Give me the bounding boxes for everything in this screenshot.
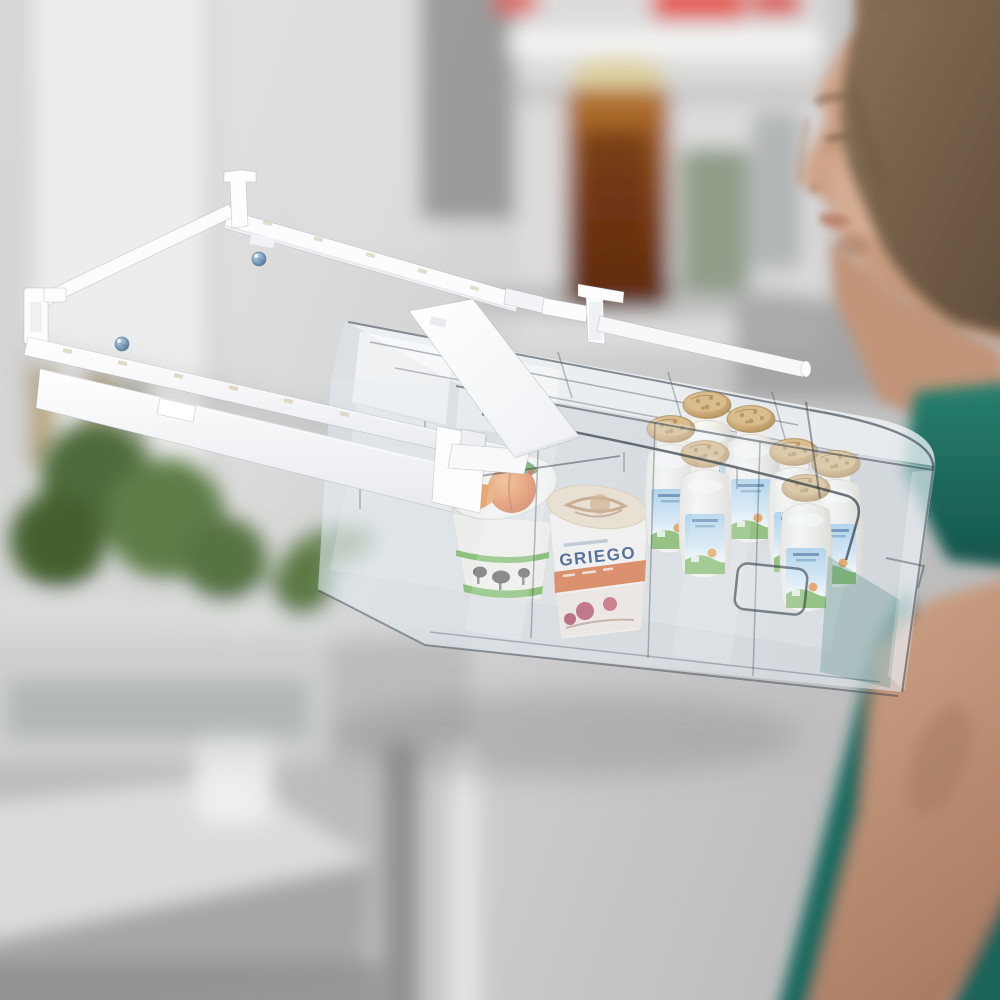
shelf-under — [0, 962, 380, 1000]
bowl-shadow — [8, 680, 308, 738]
chin-shadow — [836, 236, 868, 256]
nostril — [809, 185, 819, 191]
shelf-line-upper — [510, 30, 820, 56]
gray-jar — [752, 112, 802, 270]
front-hook-shade — [30, 302, 42, 332]
red-container — [494, 0, 538, 14]
drawer-ground-shadow — [330, 693, 800, 777]
right-rail-endcap — [801, 361, 811, 377]
jam-jar-dark — [580, 130, 650, 290]
red-container — [750, 0, 802, 16]
herb — [183, 518, 267, 602]
product-photo: GRIEGO — [0, 0, 1000, 1000]
dark-strip — [420, 0, 520, 220]
herb — [10, 492, 106, 588]
red-container — [652, 0, 746, 20]
front-left-hook-tab — [44, 288, 66, 302]
light-band — [300, 0, 440, 250]
adjust-screw — [115, 337, 129, 351]
adjust-screw — [252, 252, 266, 266]
door-edge-left — [384, 742, 420, 1000]
photo-svg: GRIEGO — [0, 0, 1000, 1000]
pickle-jar — [680, 148, 750, 293]
door-highlight — [452, 742, 478, 1000]
drawer-handle — [734, 562, 808, 615]
